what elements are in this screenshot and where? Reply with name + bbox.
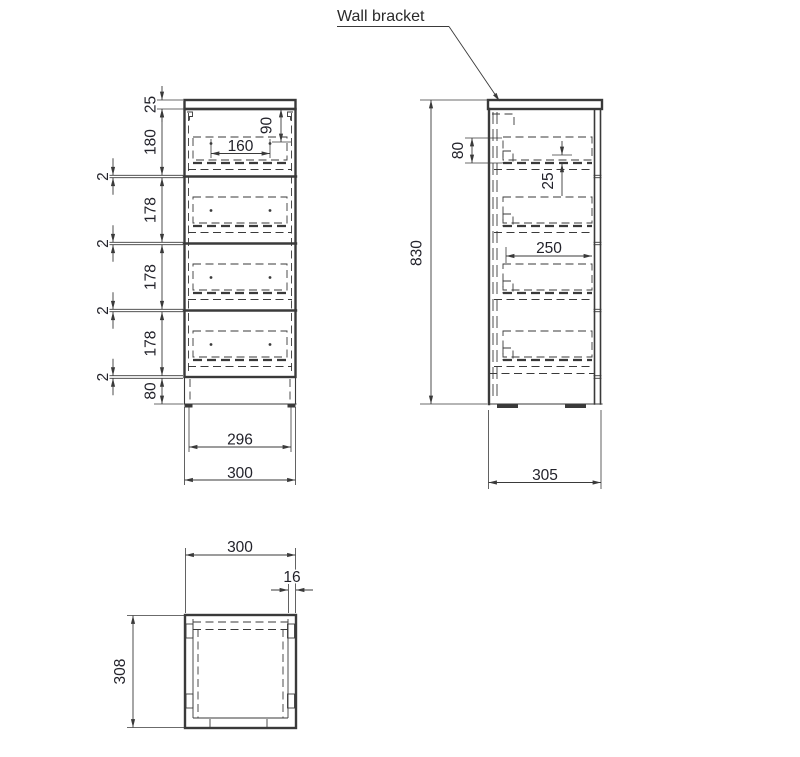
dim-label-drawer4-height: 178 — [143, 331, 160, 357]
front-view: 25 180 2 178 2 178 2 178 2 80 160 90 296… — [95, 86, 296, 485]
side-foot-left — [497, 404, 518, 408]
drawer-box — [193, 331, 287, 357]
slide-bracket — [503, 348, 513, 360]
drawer-box-side — [503, 331, 592, 357]
slide-clip-right — [288, 112, 294, 121]
slide-bracket — [503, 281, 513, 293]
cabinet-technical-drawing: 25 180 2 178 2 178 2 178 2 80 160 90 296… — [0, 0, 800, 757]
slide-bracket — [503, 151, 513, 163]
front-drawer-boxes — [188, 137, 292, 367]
wall-bracket-callout: Wall bracket — [337, 8, 500, 101]
dim-label-gap3: 2 — [95, 306, 112, 315]
drawer-box-side — [503, 264, 592, 290]
dim-label-drawer3-height: 178 — [143, 264, 160, 290]
drawer-box-side — [503, 197, 592, 223]
dim-label-screw-drop: 90 — [259, 117, 276, 135]
slide-bracket — [503, 214, 513, 226]
top-view: 300 16 308 — [112, 539, 313, 728]
dim-label-box-height: 80 — [450, 142, 467, 160]
dim-label-drawer-depth: 250 — [536, 240, 562, 257]
screw-dot — [269, 276, 272, 279]
front-dimensions: 25 180 2 178 2 178 2 178 2 80 160 90 296… — [95, 86, 296, 485]
side-foot-right — [565, 404, 586, 408]
dim-label-screw-spacing: 160 — [228, 138, 254, 155]
drawer-box — [193, 264, 287, 290]
dim-label-drawer2-height: 178 — [143, 197, 160, 223]
drawing-canvas: 25 180 2 178 2 178 2 178 2 80 160 90 296… — [0, 0, 800, 757]
dim-label-total-height: 830 — [409, 240, 426, 266]
dim-label-front-width: 300 — [227, 465, 253, 482]
dim-label-wall-thickness: 16 — [283, 569, 300, 586]
dim-label-top-width: 300 — [227, 539, 253, 556]
screw-dot — [269, 343, 272, 346]
drawer-box — [193, 197, 287, 223]
front-foot-right — [288, 404, 296, 408]
dim-label-drawer1-height: 180 — [143, 129, 160, 155]
screw-dot — [210, 343, 213, 346]
screw-dot — [210, 209, 213, 212]
dim-label-total-depth: 305 — [532, 467, 558, 484]
screw-dot — [269, 209, 272, 212]
front-foot-left — [185, 404, 193, 408]
dim-label-gap1: 2 — [95, 172, 112, 181]
side-dimensions: 80 25 250 830 305 — [409, 100, 602, 489]
dim-label-screw-offset: 25 — [540, 172, 557, 189]
top-cabinet-outline — [185, 615, 296, 728]
slide-clip-left — [187, 112, 193, 121]
screw-dot — [210, 276, 213, 279]
side-top-panel — [488, 100, 602, 109]
top-panel-outline — [185, 615, 296, 728]
drawer-box-side — [503, 137, 592, 160]
front-top-panel — [185, 100, 296, 109]
dim-label-gap2: 2 — [95, 239, 112, 248]
wall-bracket-label: Wall bracket — [337, 8, 425, 25]
dim-label-top-panel: 25 — [143, 96, 160, 113]
wall-bracket-leader — [449, 27, 500, 102]
side-view: Wall bracket — [337, 8, 602, 489]
wall-bracket-hidden-outline — [492, 114, 514, 127]
dim-label-gap4: 2 — [95, 373, 112, 382]
dim-label-inner-width: 296 — [227, 432, 253, 449]
dim-label-top-depth: 308 — [112, 659, 129, 685]
dim-label-plinth: 80 — [143, 382, 160, 400]
